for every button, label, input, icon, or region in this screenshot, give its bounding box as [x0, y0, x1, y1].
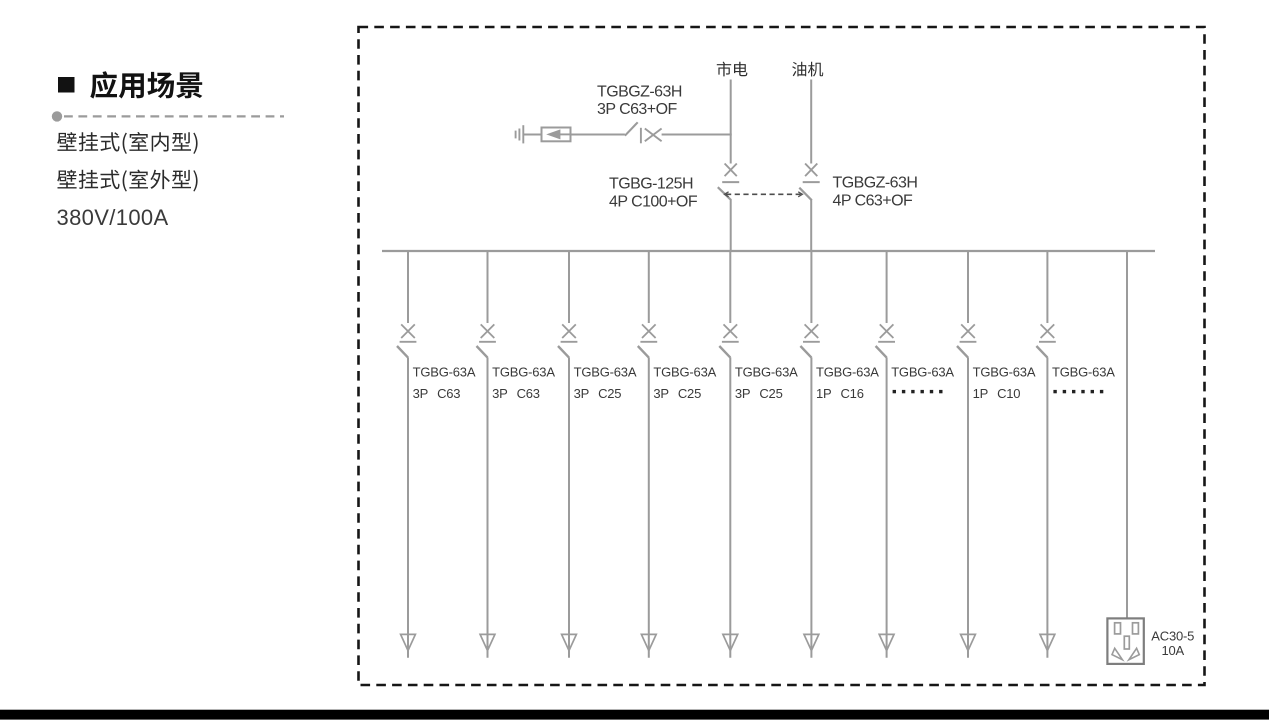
svg-text:TGBG-63A: TGBG-63A: [653, 364, 716, 379]
svg-text:10A: 10A: [1162, 643, 1185, 658]
svg-text:3P C63: 3P C63: [413, 386, 461, 401]
svg-text:TGBGZ-63H: TGBGZ-63H: [597, 84, 682, 101]
svg-text:AC30-5: AC30-5: [1151, 628, 1194, 643]
svg-text:4P C63+OF: 4P C63+OF: [833, 193, 913, 210]
svg-text:3P C25: 3P C25: [653, 386, 701, 401]
svg-text:380V/100A: 380V/100A: [57, 205, 169, 230]
svg-text:TGBG-63A: TGBG-63A: [413, 364, 476, 379]
svg-text:TGBG-125H: TGBG-125H: [609, 175, 693, 192]
svg-text:1P C16: 1P C16: [816, 386, 864, 401]
svg-text:TGBGZ-63H: TGBGZ-63H: [833, 174, 918, 191]
svg-text:3P C63: 3P C63: [492, 386, 540, 401]
svg-text:TGBG-63A: TGBG-63A: [1052, 364, 1115, 379]
svg-text:TGBG-63A: TGBG-63A: [735, 364, 798, 379]
svg-text:TGBG-63A: TGBG-63A: [574, 364, 637, 379]
svg-text:TGBG-63A: TGBG-63A: [492, 364, 555, 379]
svg-text:1P C10: 1P C10: [973, 386, 1021, 401]
svg-text:TGBG-63A: TGBG-63A: [891, 364, 954, 379]
svg-text:3P C63+OF: 3P C63+OF: [597, 101, 677, 118]
svg-text:TGBG-63A: TGBG-63A: [816, 364, 879, 379]
svg-text:3P C25: 3P C25: [574, 386, 622, 401]
svg-text:TGBG-63A: TGBG-63A: [973, 364, 1036, 379]
svg-text:4P C100+OF: 4P C100+OF: [609, 193, 698, 210]
svg-text:3P C25: 3P C25: [735, 386, 783, 401]
